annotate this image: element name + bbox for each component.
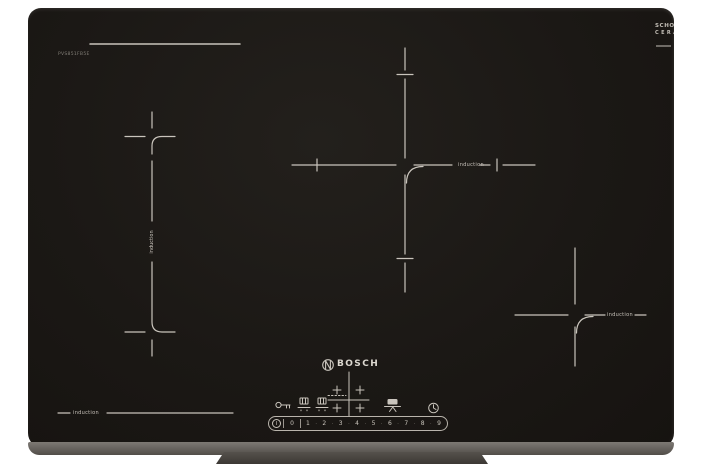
glass-brand-line2: CERAN xyxy=(655,30,674,36)
slider-divider xyxy=(300,419,301,428)
zone-label-flex-left: induction xyxy=(149,230,155,253)
separator-dot: · xyxy=(332,421,334,427)
model-number: PVS851FB5E xyxy=(58,52,90,57)
glass-brand-line1: SCHOTT xyxy=(655,23,674,29)
zone-label-right: induction xyxy=(607,312,633,318)
power-icon[interactable]: I xyxy=(272,419,281,428)
level-key-1[interactable]: 1 xyxy=(306,420,310,427)
power-level-slider[interactable]: I 0 1 · 2 · 3 · 4 · 5 · 6 · 7 · 8 · xyxy=(268,416,448,431)
right-zone-marking xyxy=(515,248,646,366)
level-key-3[interactable]: 3 xyxy=(339,420,343,427)
separator-dot: · xyxy=(364,421,366,427)
level-key-4[interactable]: 4 xyxy=(355,420,359,427)
center-zone-marking xyxy=(292,48,535,292)
separator-dot: · xyxy=(430,421,432,427)
zone-label-center: induction xyxy=(458,162,484,168)
pan-zone-left-icon[interactable] xyxy=(298,398,310,411)
separator-dot: · xyxy=(381,421,383,427)
separator-dot: · xyxy=(348,421,350,427)
separator-dot: · xyxy=(315,421,317,427)
induction-cooktop-glass: PVS851FB5E SCHOTT CERAN BOSCH induction … xyxy=(28,8,674,448)
level-key-7[interactable]: 7 xyxy=(404,420,408,427)
level-key-5[interactable]: 5 xyxy=(372,420,376,427)
glass-brand-subtext-bar xyxy=(656,45,671,47)
slider-divider xyxy=(283,419,284,428)
separator-dot: · xyxy=(397,421,399,427)
separator-dot: · xyxy=(414,421,416,427)
level-key-6[interactable]: 6 xyxy=(388,420,392,427)
glass-brand-logo: SCHOTT CERAN xyxy=(655,23,674,36)
pot-stand-icon[interactable] xyxy=(385,400,401,412)
bosch-emblem-icon xyxy=(323,360,334,371)
level-key-0[interactable]: 0 xyxy=(286,420,298,427)
product-photo-stage: PVS851FB5E SCHOTT CERAN BOSCH induction … xyxy=(0,0,701,466)
level-key-9[interactable]: 9 xyxy=(437,420,441,427)
key-lock-icon[interactable] xyxy=(276,402,290,408)
level-key-2[interactable]: 2 xyxy=(322,420,326,427)
level-keys[interactable]: 1 · 2 · 3 · 4 · 5 · 6 · 7 · 8 · 9 xyxy=(303,420,444,427)
zone-markings-graphic xyxy=(28,8,674,448)
bosch-wordmark: BOSCH xyxy=(337,359,379,369)
pan-zone-right-icon[interactable] xyxy=(316,398,328,411)
zone-label-front-left: induction xyxy=(73,410,99,416)
timer-clock-icon[interactable] xyxy=(429,403,439,413)
display-stand xyxy=(216,452,488,464)
level-key-8[interactable]: 8 xyxy=(421,420,425,427)
zone-map-icon xyxy=(328,372,369,416)
power-symbol: I xyxy=(276,421,278,427)
